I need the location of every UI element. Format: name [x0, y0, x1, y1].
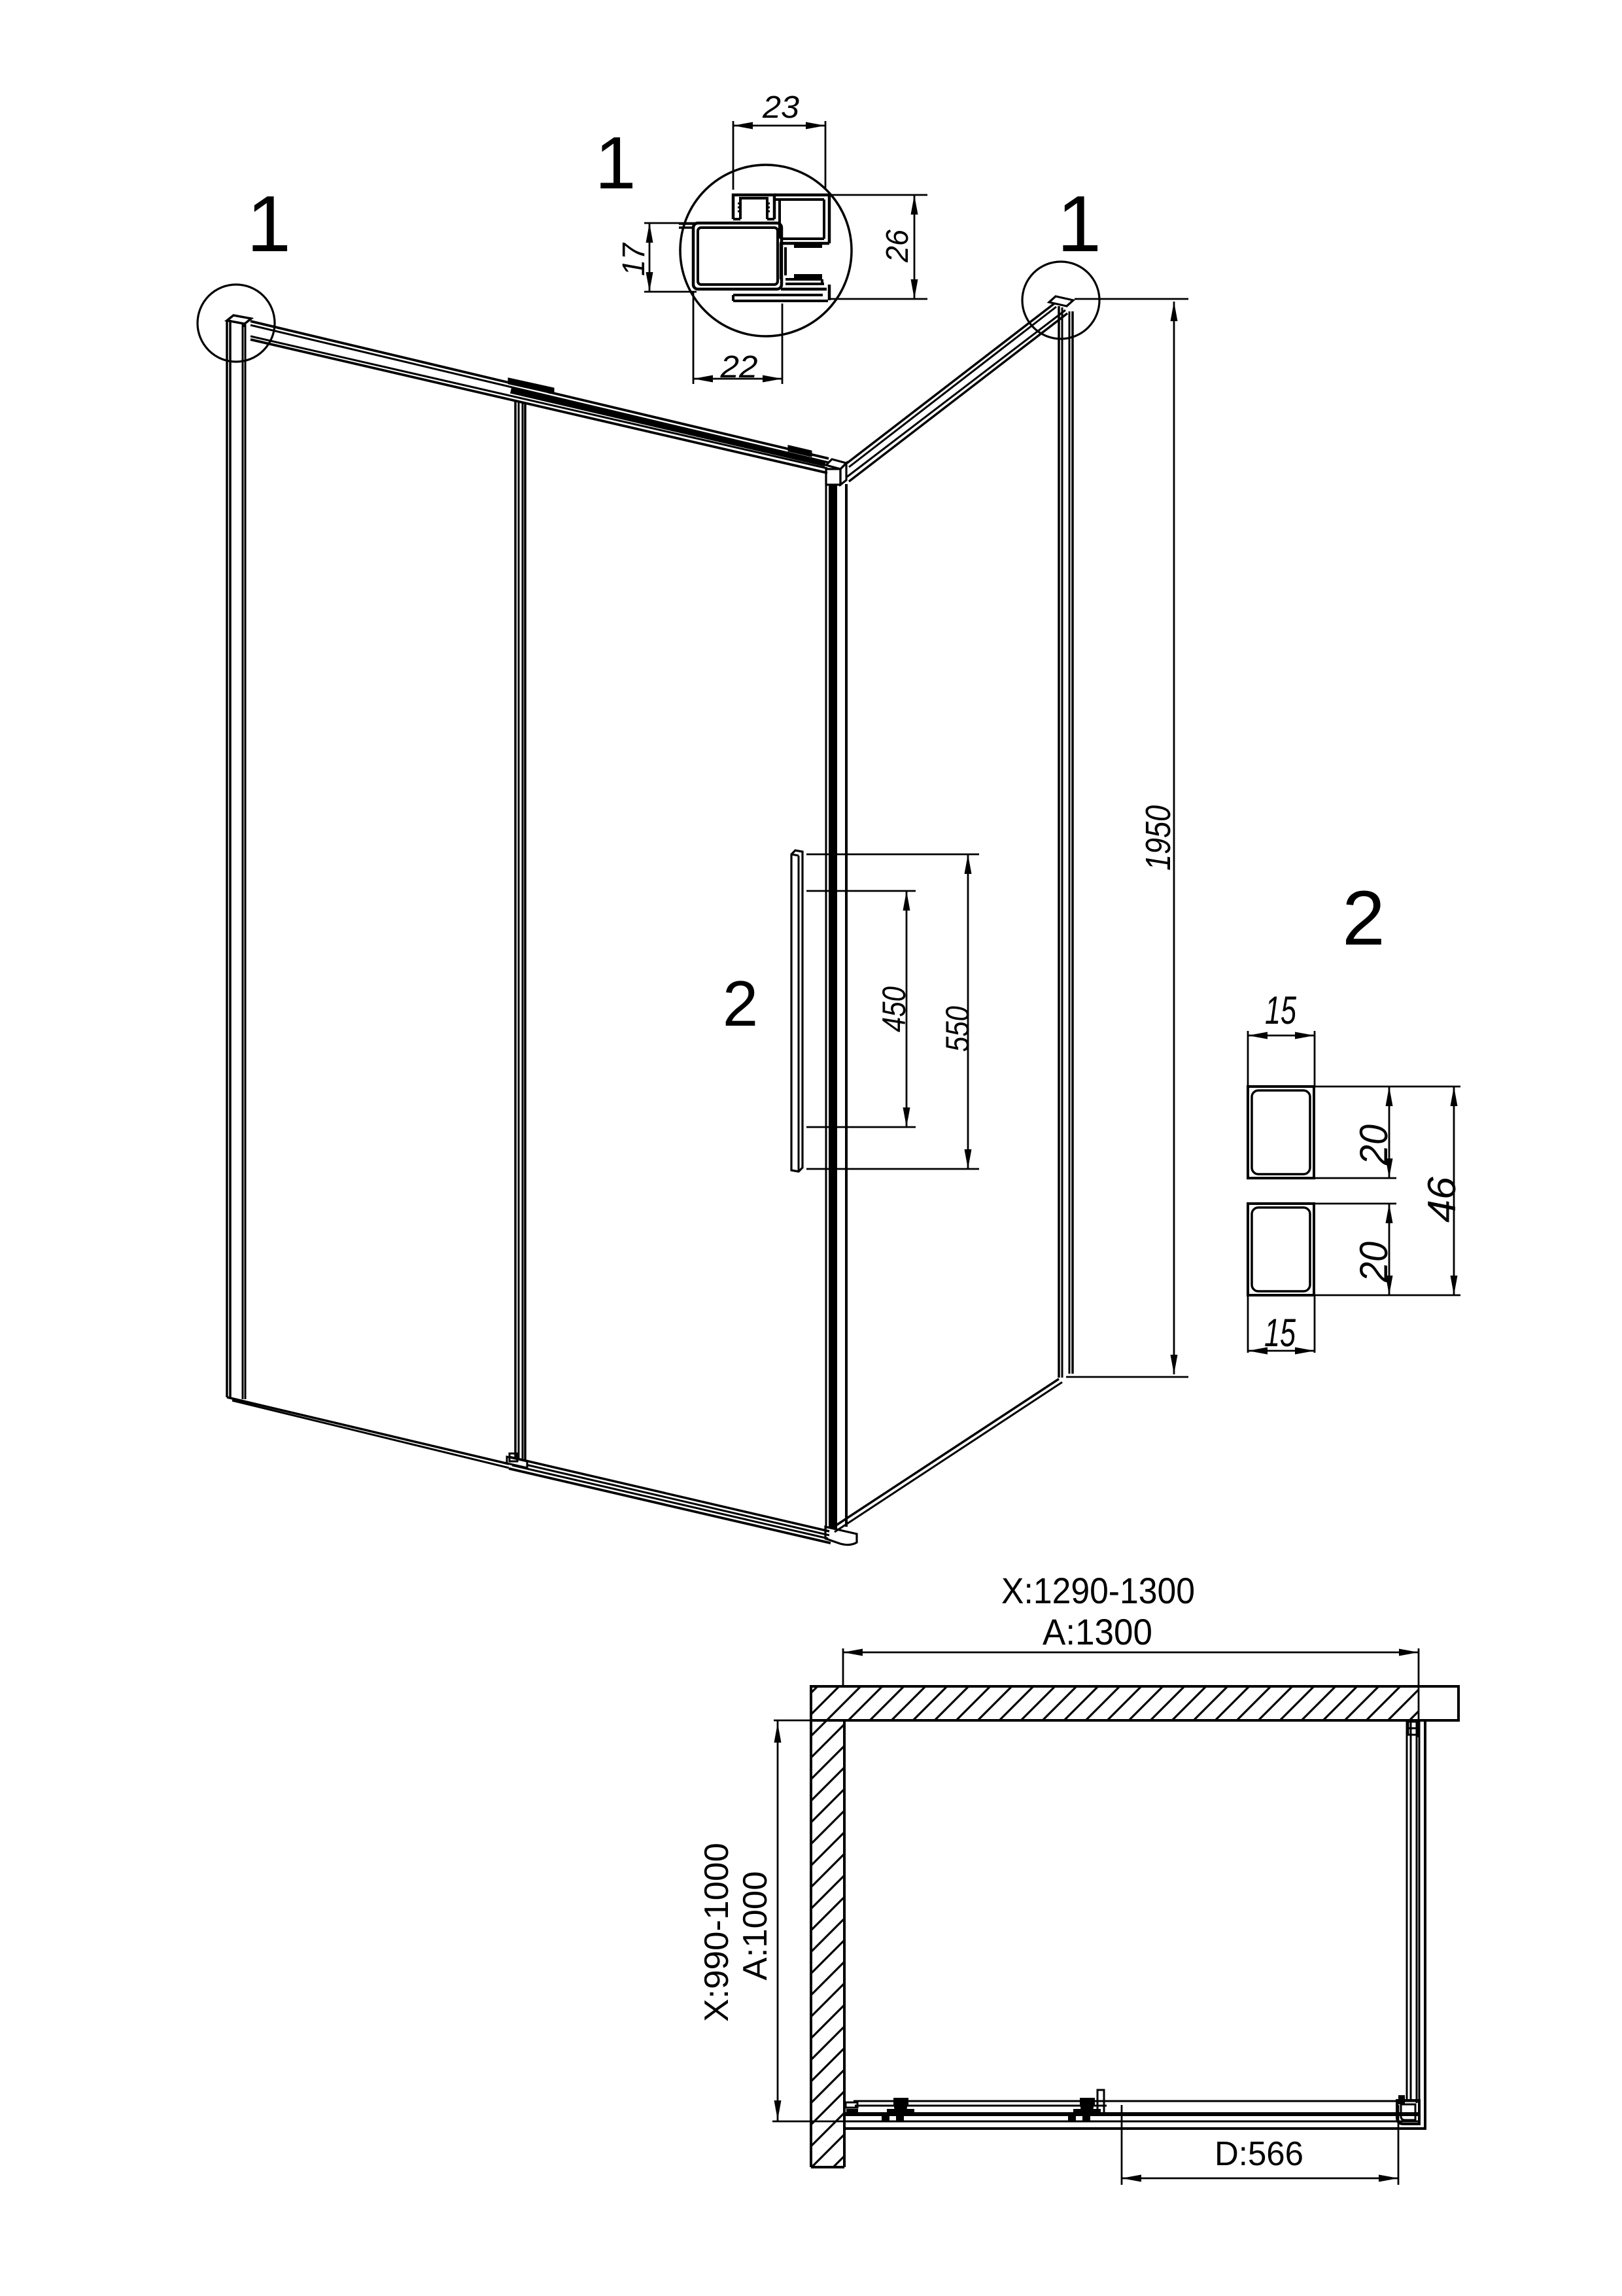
svg-text:550: 550: [939, 1006, 976, 1052]
svg-text:X:1290-1300: X:1290-1300: [1001, 1570, 1195, 1611]
svg-text:1: 1: [1057, 179, 1101, 268]
svg-text:D:566: D:566: [1215, 2135, 1303, 2173]
svg-text:15: 15: [1264, 1311, 1296, 1355]
svg-text:A:1300: A:1300: [1043, 1611, 1152, 1652]
svg-text:2: 2: [1342, 875, 1385, 962]
svg-text:450: 450: [876, 986, 912, 1032]
svg-text:20: 20: [1352, 1124, 1396, 1166]
svg-text:15: 15: [1265, 988, 1296, 1032]
svg-text:23: 23: [762, 90, 799, 125]
svg-text:20: 20: [1352, 1242, 1396, 1283]
svg-text:A:1000: A:1000: [736, 1871, 774, 1981]
svg-text:17: 17: [617, 242, 651, 276]
svg-text:2: 2: [723, 967, 759, 1039]
svg-text:46: 46: [1420, 1176, 1464, 1223]
svg-text:X:990-1000: X:990-1000: [698, 1843, 736, 2022]
svg-text:1950: 1950: [1139, 805, 1178, 871]
svg-text:26: 26: [880, 230, 915, 263]
svg-text:1: 1: [595, 122, 636, 204]
svg-text:22: 22: [719, 350, 757, 385]
svg-text:1: 1: [247, 179, 291, 268]
